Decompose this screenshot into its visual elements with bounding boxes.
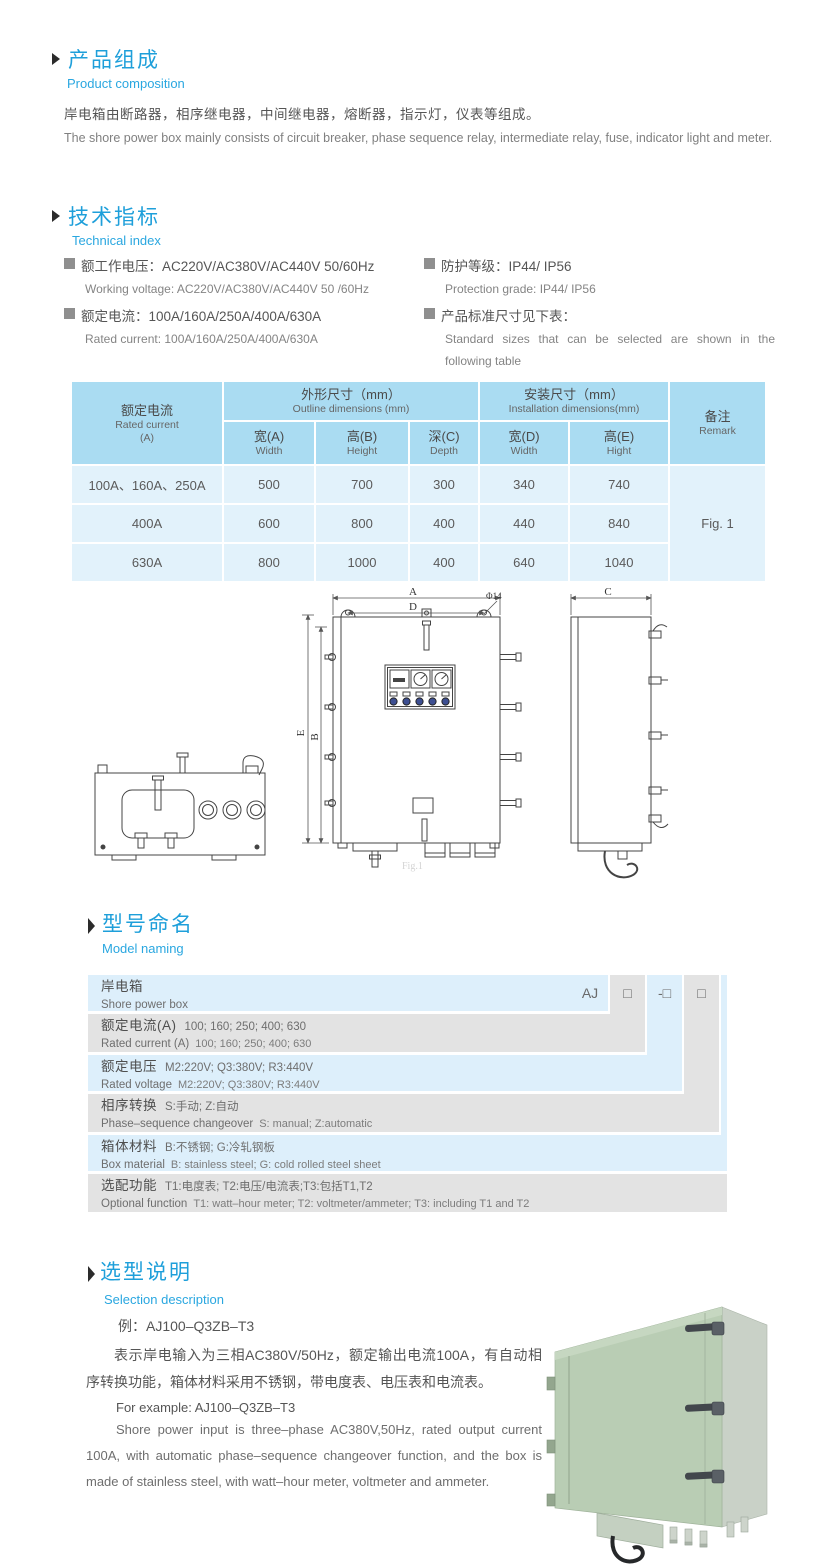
selection-example-cn: 例：AJ100–Q3ZB–T3 bbox=[86, 1316, 542, 1336]
square-bullet-icon bbox=[64, 258, 75, 269]
model-code-box1: □ bbox=[610, 975, 645, 1011]
header-installation-dimensions: 安装尺寸（mm） Installation dimensions(mm) bbox=[480, 382, 668, 420]
dim-label-a: A bbox=[409, 586, 417, 598]
ladder-row-phase-sequence: 相序转换S:手动; Z:自动 Phase–sequence changeover… bbox=[88, 1094, 719, 1132]
ladder-row-rated-voltage: 额定电压M2:220V; Q3:380V; R3:440V Rated volt… bbox=[88, 1055, 682, 1091]
nameplate bbox=[413, 798, 433, 813]
spec-standard-sizes-en: Standard sizes that can be selected are … bbox=[445, 328, 775, 372]
dim-label-c: C bbox=[604, 586, 611, 598]
square-bullet-icon bbox=[64, 308, 75, 319]
selection-body-cn: 表示岸电输入为三相AC380V/50Hz，额定输出电流100A，有自动相序转换功… bbox=[86, 1342, 542, 1396]
section-subtitle-model-naming: Model naming bbox=[102, 941, 184, 956]
selection-text-column: 例：AJ100–Q3ZB–T3 表示岸电输入为三相AC380V/50Hz，额定输… bbox=[86, 1316, 542, 1495]
door-latches bbox=[500, 653, 521, 807]
ladder-row-rated-current: 额定电流(A)100; 160; 250; 400; 630 Rated cur… bbox=[88, 1014, 645, 1052]
table-row: 100A、160A、250A 500 700 300 340 740 Fig. … bbox=[72, 466, 765, 503]
dimension-lines bbox=[302, 594, 500, 843]
bottom-view bbox=[95, 753, 265, 860]
spec-protection-en: Protection grade: IP44/ IP56 bbox=[445, 282, 596, 296]
header-height-e: 高(E)Hight bbox=[570, 422, 668, 464]
product-photo bbox=[535, 1282, 810, 1568]
spec-working-voltage-cn: 额工作电压：AC220V/AC380V/AC440V 50/60Hz bbox=[81, 255, 374, 275]
section-subtitle-technical: Technical index bbox=[72, 233, 161, 248]
dim-label-d: D bbox=[409, 601, 417, 613]
section-arrow-icon bbox=[52, 210, 60, 222]
section-arrow-icon bbox=[88, 1266, 95, 1282]
square-bullet-icon bbox=[424, 308, 435, 319]
header-width-a: 宽(A)Width bbox=[224, 422, 314, 464]
section-title-selection: 选型说明 bbox=[100, 1256, 192, 1286]
ladder-row-shore-power-box: 岸电箱 Shore power box bbox=[88, 975, 608, 1011]
technical-drawing: A D Φ14 E B C bbox=[80, 585, 700, 885]
selection-body-en: Shore power input is three–phase AC380V,… bbox=[86, 1417, 542, 1495]
header-depth-c: 深(C)Depth bbox=[410, 422, 478, 464]
spec-working-voltage-en: Working voltage: AC220V/AC380V/AC440V 50… bbox=[85, 282, 369, 296]
ladder-row-optional-function: 选配功能T1:电度表; T2:电压/电流表;T3:包括T1,T2 Optiona… bbox=[88, 1174, 727, 1212]
door-hinge-bolts bbox=[325, 654, 336, 807]
header-width-d: 宽(D)Width bbox=[480, 422, 568, 464]
section-subtitle-composition: Product composition bbox=[67, 76, 185, 91]
cabinet-front-face bbox=[555, 1307, 722, 1527]
meter-panel bbox=[385, 665, 455, 709]
section-title-composition: 产品组成 bbox=[68, 44, 160, 74]
model-code-box3: □ bbox=[684, 975, 719, 1011]
header-rated-current: 额定电流 Rated current (A) bbox=[72, 382, 222, 464]
table-header-group-row: 额定电流 Rated current (A) 外形尺寸（mm） Outline … bbox=[72, 382, 765, 420]
selection-example-en: For example: AJ100–Q3ZB–T3 bbox=[86, 1400, 542, 1415]
side-view bbox=[571, 617, 668, 877]
section-title-technical: 技术指标 bbox=[68, 201, 160, 231]
hinges bbox=[547, 1377, 555, 1506]
dim-label-e: E bbox=[295, 729, 307, 736]
section-arrow-icon bbox=[88, 918, 95, 934]
section-subtitle-selection: Selection description bbox=[104, 1292, 224, 1307]
spec-standard-sizes-cn: 产品标准尺寸见下表： bbox=[441, 305, 576, 325]
figure-caption: Fig.1 bbox=[402, 861, 423, 872]
dim-label-b: B bbox=[309, 733, 321, 740]
model-code-box2: -□ bbox=[647, 975, 682, 1011]
spec-protection-cn: 防护等级：IP44/ IP56 bbox=[441, 255, 572, 275]
table-row: 400A 600 800 400 440 840 bbox=[72, 505, 765, 542]
square-bullet-icon bbox=[424, 258, 435, 269]
spec-rated-current-en: Rated current: 100A/160A/250A/400A/630A bbox=[85, 332, 318, 346]
section-title-model-naming: 型号命名 bbox=[102, 908, 194, 938]
header-height-b: 高(B)Height bbox=[316, 422, 408, 464]
header-outline-dimensions: 外形尺寸（mm） Outline dimensions (mm) bbox=[224, 382, 478, 420]
cabinet-side-face bbox=[722, 1307, 767, 1527]
model-code-prefix: AJ bbox=[570, 975, 610, 1011]
dimensions-table: 额定电流 Rated current (A) 外形尺寸（mm） Outline … bbox=[70, 380, 767, 583]
composition-body-en: The shore power box mainly consists of c… bbox=[64, 131, 772, 145]
catalog-page: 产品组成 Product composition 岸电箱由断路器，相序继电器，中… bbox=[0, 0, 830, 1568]
dim-label-dia: Φ14 bbox=[486, 591, 502, 601]
section-arrow-icon bbox=[52, 53, 60, 65]
remark-cell: Fig. 1 bbox=[670, 466, 765, 581]
model-naming-ladder: 岸电箱 Shore power box 额定电流(A)100; 160; 250… bbox=[88, 975, 727, 1212]
spec-rated-current-cn: 额定电流：100A/160A/250A/400A/630A bbox=[81, 305, 321, 325]
table-row: 630A 800 1000 400 640 1040 bbox=[72, 544, 765, 581]
composition-body-cn: 岸电箱由断路器，相序继电器，中间继电器，熔断器，指示灯，仪表等组成。 bbox=[64, 103, 540, 123]
ladder-row-box-material: 箱体材料B:不锈钢; G:冷轧钢板 Box materialB: stainle… bbox=[88, 1135, 727, 1171]
front-view bbox=[325, 609, 521, 867]
header-remark: 备注 Remark bbox=[670, 382, 765, 464]
